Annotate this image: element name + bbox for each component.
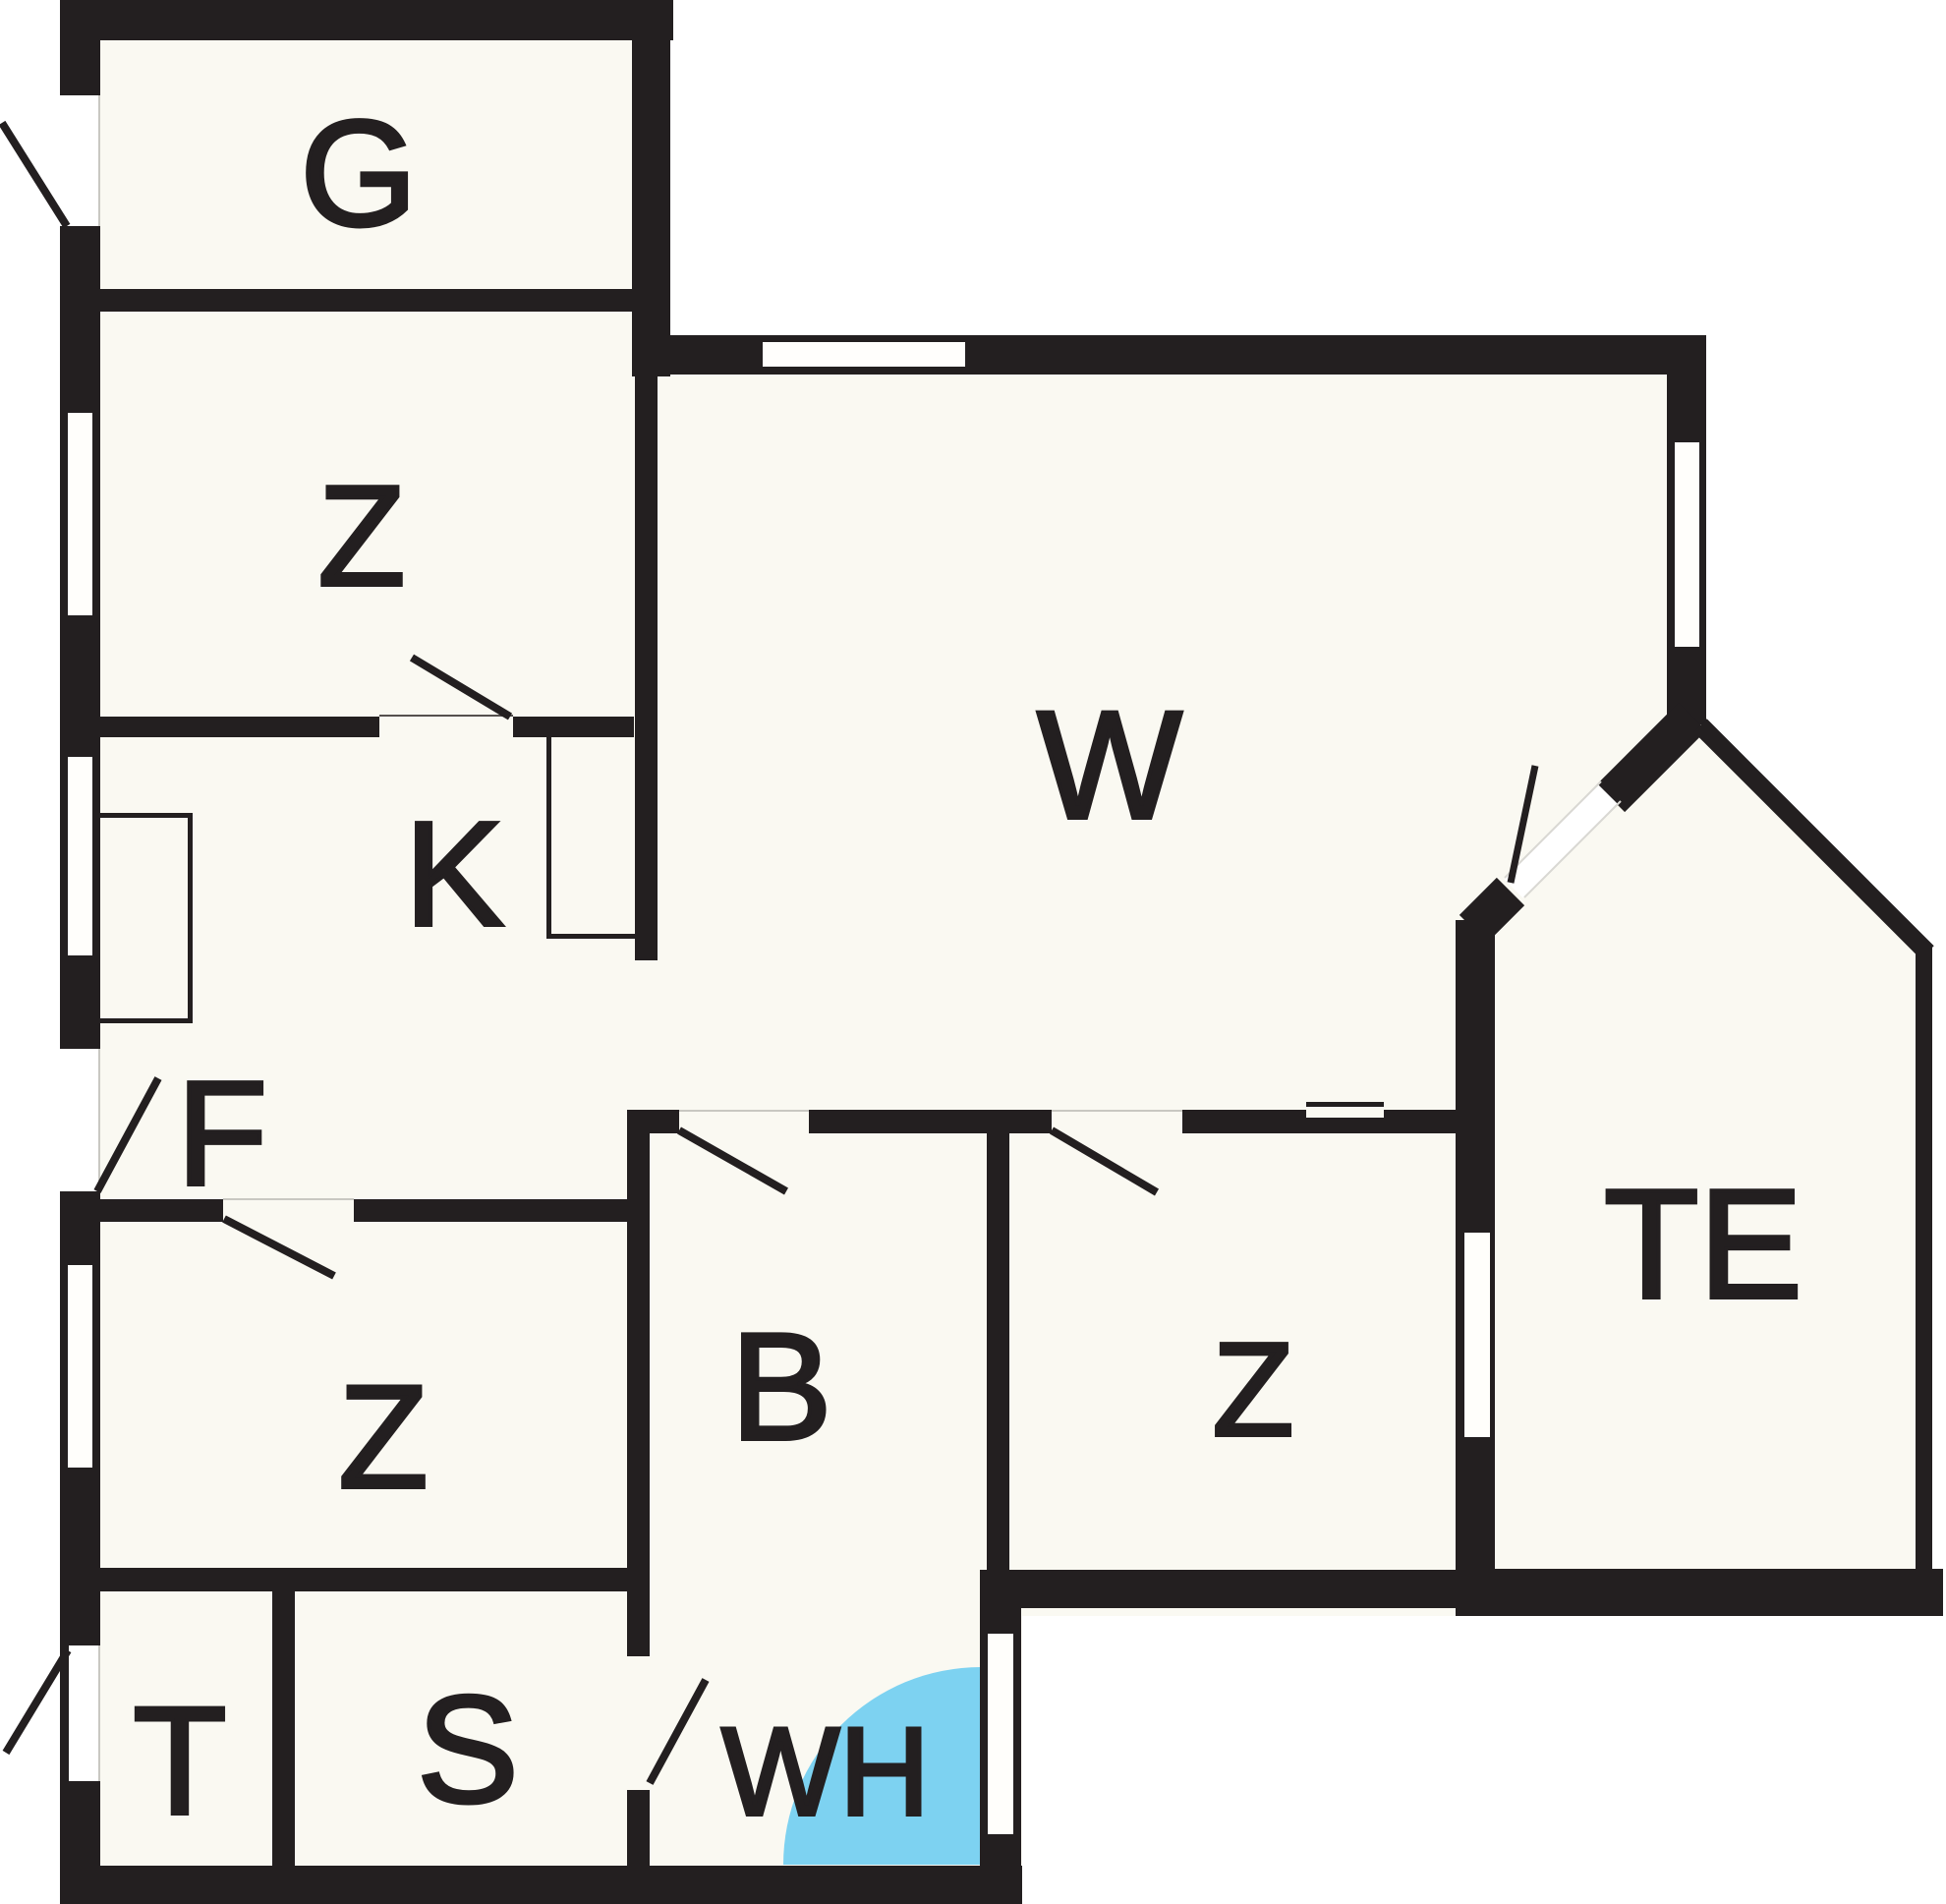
svg-text:W: W — [1037, 680, 1181, 851]
svg-text:G: G — [300, 89, 417, 258]
svg-text:F: F — [177, 1050, 267, 1216]
svg-text:WH: WH — [721, 1702, 930, 1841]
svg-text:TE: TE — [1604, 1158, 1803, 1331]
svg-text:B: B — [730, 1301, 831, 1471]
svg-text:T: T — [133, 1676, 226, 1847]
svg-text:Z: Z — [338, 1355, 428, 1519]
svg-text:Z: Z — [318, 456, 406, 615]
svg-text:K: K — [405, 790, 504, 956]
svg-text:S: S — [417, 1664, 518, 1834]
svg-text:Z: Z — [1213, 1315, 1293, 1464]
